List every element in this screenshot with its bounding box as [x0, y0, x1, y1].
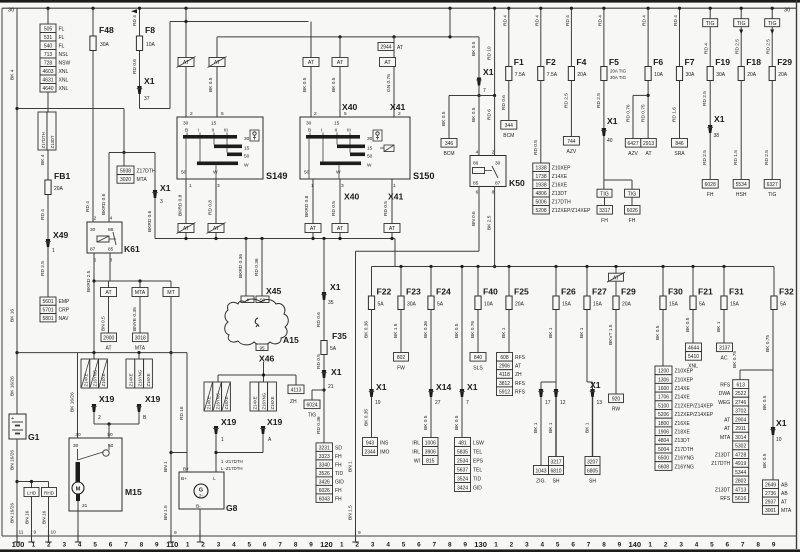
svg-text:F31: F31	[729, 287, 744, 297]
svg-text:BK 0.5: BK 0.5	[423, 415, 429, 430]
svg-text:BKVT 1.5: BKVT 1.5	[608, 324, 614, 345]
svg-text:F30: F30	[668, 287, 683, 297]
svg-text:X19: X19	[267, 417, 283, 427]
svg-text:L -Z17DTH: L -Z17DTH	[221, 466, 243, 471]
svg-text:Z16XE: Z16XE	[101, 373, 106, 386]
svg-text:RD 6: RD 6	[487, 109, 493, 120]
svg-text:F18: F18	[746, 57, 761, 67]
svg-text:6327: 6327	[767, 182, 778, 188]
svg-text:ZIG.: ZIG.	[536, 479, 546, 485]
svg-text:6026: 6026	[319, 488, 330, 494]
svg-text:3137: 3137	[719, 346, 730, 352]
svg-text:Z14XE: Z14XE	[675, 386, 691, 392]
svg-text:15: 15	[211, 121, 217, 127]
svg-text:AT: AT	[781, 500, 787, 506]
svg-text:20A: 20A	[54, 186, 64, 192]
svg-text:4919: 4919	[735, 461, 746, 467]
svg-text:2944: 2944	[380, 44, 391, 50]
svg-text:Z17DTH: Z17DTH	[711, 461, 730, 467]
svg-text:BK 0.5: BK 0.5	[331, 77, 337, 92]
svg-text:30: 30	[8, 8, 14, 14]
svg-text:38: 38	[714, 133, 720, 139]
svg-text:3001: 3001	[765, 508, 776, 514]
svg-text:X1: X1	[776, 418, 787, 428]
svg-text:4806: 4806	[535, 191, 546, 197]
svg-text:3: 3	[679, 542, 683, 549]
svg-text:RD 4: RD 4	[565, 15, 571, 26]
svg-text:4713: 4713	[735, 487, 746, 493]
svg-text:7.5A: 7.5A	[547, 72, 558, 78]
svg-text:4728: 4728	[735, 452, 746, 458]
svg-text:MTA: MTA	[720, 435, 731, 441]
svg-text:BK 1: BK 1	[548, 422, 554, 433]
svg-text:1043: 1043	[535, 468, 546, 474]
svg-text:20A TIG: 20A TIG	[610, 69, 627, 74]
svg-text:4: 4	[386, 542, 390, 549]
svg-text:TIG: TIG	[706, 21, 715, 27]
svg-text:RD 4: RD 4	[132, 15, 138, 26]
svg-text:30: 30	[183, 121, 189, 127]
svg-text:RD 2.5: RD 2.5	[764, 150, 770, 165]
svg-text:3: 3	[160, 199, 163, 205]
svg-text:3217: 3217	[550, 459, 561, 465]
svg-text:30A TIG: 30A TIG	[610, 75, 627, 80]
svg-text:4804: 4804	[658, 438, 669, 444]
svg-text:540: 540	[44, 43, 53, 49]
svg-text:30A: 30A	[686, 72, 696, 78]
svg-text:4644: 4644	[688, 346, 699, 352]
svg-text:BK 16: BK 16	[10, 309, 16, 322]
svg-text:Z12XEP/Z14XEP: Z12XEP/Z14XEP	[675, 403, 714, 409]
svg-text:F6: F6	[653, 57, 663, 67]
svg-text:5616: 5616	[735, 496, 746, 502]
svg-text:G8: G8	[226, 503, 238, 513]
svg-text:X1: X1	[144, 76, 155, 86]
svg-text:12: 12	[560, 400, 566, 406]
svg-text:RD 0.6: RD 0.6	[316, 312, 322, 327]
svg-text:RD 0.8: RD 0.8	[208, 200, 214, 215]
svg-text:RFS: RFS	[720, 496, 731, 502]
svg-text:Z14XE: Z14XE	[675, 395, 691, 401]
svg-text:EPS: EPS	[473, 458, 484, 464]
svg-text:10A: 10A	[654, 72, 664, 78]
svg-text:BK 0.35: BK 0.35	[364, 409, 370, 426]
svg-text:2: 2	[98, 415, 101, 421]
svg-text:F4: F4	[576, 57, 586, 67]
svg-text:Z14XE: Z14XE	[207, 396, 212, 409]
svg-text:FL: FL	[59, 35, 65, 41]
svg-text:X1: X1	[330, 282, 341, 292]
svg-text:BK 4: BK 4	[40, 154, 46, 165]
svg-text:RD 2.5: RD 2.5	[702, 91, 708, 106]
svg-text:RD 0.6: RD 0.6	[501, 95, 507, 110]
svg-text:4113: 4113	[291, 388, 302, 394]
svg-text:L: L	[213, 476, 216, 482]
svg-text:X1: X1	[607, 116, 618, 126]
svg-text:2522: 2522	[735, 391, 746, 397]
svg-text:F7: F7	[685, 57, 695, 67]
svg-text:846: 846	[675, 141, 684, 147]
svg-text:30: 30	[90, 227, 96, 233]
svg-text:50: 50	[181, 170, 187, 176]
svg-text:140: 140	[628, 540, 641, 549]
svg-text:13: 13	[597, 400, 603, 406]
svg-text:5206: 5206	[658, 412, 669, 418]
svg-text:AT: AT	[724, 417, 730, 423]
svg-text:1006: 1006	[425, 440, 436, 446]
svg-text:20A: 20A	[577, 72, 587, 78]
svg-text:5701: 5701	[42, 308, 53, 314]
svg-text:50: 50	[304, 170, 310, 176]
svg-text:7: 7	[278, 542, 282, 549]
svg-text:AT: AT	[105, 290, 112, 296]
svg-text:F2: F2	[546, 57, 556, 67]
svg-text:SD: SD	[335, 445, 342, 451]
svg-text:5302: 5302	[735, 444, 746, 450]
svg-text:7: 7	[466, 400, 469, 406]
svg-text:4: 4	[476, 150, 479, 156]
svg-text:30: 30	[73, 443, 79, 449]
svg-text:BN 1: BN 1	[163, 461, 169, 472]
svg-text:RFS: RFS	[515, 355, 526, 361]
svg-text:15A: 15A	[593, 302, 603, 308]
svg-text:6024: 6024	[306, 403, 317, 409]
svg-text:RHD: RHD	[44, 490, 55, 495]
svg-text:20A: 20A	[778, 72, 788, 78]
svg-text:F23: F23	[406, 287, 421, 297]
svg-text:W: W	[213, 170, 218, 176]
svg-text:MTA: MTA	[135, 290, 146, 296]
svg-text:4631: 4631	[42, 77, 53, 83]
svg-text:MT: MT	[167, 290, 175, 296]
svg-text:AT: AT	[105, 346, 111, 352]
svg-text:2937: 2937	[765, 500, 776, 506]
svg-text:RW: RW	[612, 407, 621, 413]
svg-text:AT: AT	[389, 226, 396, 232]
svg-text:AB: AB	[781, 491, 788, 497]
svg-text:3812: 3812	[499, 381, 510, 387]
svg-text:5912: 5912	[499, 389, 510, 395]
svg-text:9: 9	[309, 542, 313, 549]
svg-text:3906: 3906	[425, 449, 436, 455]
svg-text:5601: 5601	[42, 299, 53, 305]
svg-text:MTA: MTA	[781, 508, 792, 514]
svg-text:X40: X40	[344, 192, 360, 202]
svg-text:2: 2	[510, 542, 514, 549]
svg-text:IRL: IRL	[412, 449, 420, 455]
svg-text:RD 2.5: RD 2.5	[596, 93, 602, 108]
svg-text:BN 16: BN 16	[25, 510, 31, 524]
svg-text:BK 1.5: BK 1.5	[393, 323, 399, 338]
svg-text:15A: 15A	[669, 302, 679, 308]
svg-text:RD 0.5: RD 0.5	[383, 201, 389, 216]
svg-text:30: 30	[306, 121, 312, 127]
svg-text:4118: 4118	[499, 372, 510, 378]
svg-text:2: 2	[190, 111, 193, 117]
svg-text:FH: FH	[601, 218, 608, 224]
svg-text:BK 0.5: BK 0.5	[208, 77, 214, 92]
svg-text:4: 4	[110, 216, 113, 222]
svg-text:2904: 2904	[735, 417, 746, 423]
svg-text:BKRD 0.8: BKRD 0.8	[178, 194, 184, 216]
svg-text:SH: SH	[589, 479, 596, 485]
svg-text:Z16YNG: Z16YNG	[675, 456, 695, 462]
svg-text:M: M	[76, 487, 81, 493]
svg-text:130: 130	[474, 540, 487, 549]
svg-text:ZH: ZH	[290, 399, 297, 405]
svg-text:Z13DT: Z13DT	[675, 438, 690, 444]
svg-text:6: 6	[417, 542, 421, 549]
svg-text:3: 3	[525, 542, 529, 549]
svg-text:744: 744	[567, 139, 576, 145]
svg-text:XNL: XNL	[59, 69, 69, 75]
svg-text:2649: 2649	[765, 482, 776, 488]
svg-text:BK 0.5: BK 0.5	[762, 395, 768, 410]
svg-text:6028: 6028	[705, 182, 716, 188]
svg-text:37: 37	[144, 96, 150, 102]
svg-text:BK 1: BK 1	[585, 422, 591, 433]
svg-text:1: 1	[189, 183, 192, 189]
svg-text:X14: X14	[436, 382, 452, 392]
svg-text:AZV: AZV	[567, 149, 577, 155]
svg-text:BN 0.5: BN 0.5	[101, 316, 107, 331]
svg-text:5100: 5100	[658, 403, 669, 409]
svg-text:F22: F22	[377, 287, 392, 297]
svg-text:FL: FL	[59, 26, 65, 32]
svg-text:FH: FH	[335, 462, 342, 468]
svg-text:TIG: TIG	[768, 192, 776, 198]
svg-text:NSL: NSL	[59, 52, 69, 58]
svg-text:BCM: BCM	[443, 151, 454, 157]
svg-text:RD 10: RD 10	[487, 46, 493, 60]
svg-text:RD 4: RD 4	[597, 15, 603, 26]
svg-text:7: 7	[483, 88, 486, 94]
svg-text:NSW: NSW	[59, 60, 71, 66]
svg-text:3317: 3317	[599, 208, 610, 214]
svg-text:1338: 1338	[535, 165, 546, 171]
svg-text:FH: FH	[629, 218, 636, 224]
svg-text:BK 1: BK 1	[533, 422, 539, 433]
svg-text:RD 2.5: RD 2.5	[766, 39, 772, 54]
svg-text:AT: AT	[337, 226, 344, 232]
svg-text:Z16XE: Z16XE	[675, 421, 691, 427]
svg-text:F27: F27	[592, 287, 607, 297]
svg-text:3: 3	[217, 542, 221, 549]
svg-text:5006: 5006	[535, 199, 546, 205]
svg-text:5344: 5344	[735, 470, 746, 476]
svg-text:I: I	[321, 128, 322, 133]
svg-text:TIG: TIG	[600, 191, 609, 197]
svg-text:Z16YNG: Z16YNG	[261, 392, 266, 409]
svg-text:IRL: IRL	[412, 440, 420, 446]
svg-text:Z14XE: Z14XE	[129, 373, 134, 386]
svg-text:20A: 20A	[515, 302, 525, 308]
svg-text:2344: 2344	[364, 449, 375, 455]
svg-text:6: 6	[263, 542, 267, 549]
svg-text:X40: X40	[342, 102, 358, 112]
svg-text:MTA: MTA	[135, 346, 146, 352]
svg-text:BK 0.5: BK 0.5	[302, 77, 308, 92]
svg-text:9: 9	[358, 530, 361, 536]
svg-text:3524: 3524	[457, 476, 468, 482]
svg-text:RD 4: RD 4	[40, 209, 46, 220]
svg-text:2913: 2913	[643, 141, 654, 147]
svg-text:RD 0.75: RD 0.75	[641, 104, 647, 122]
svg-text:6: 6	[726, 542, 730, 549]
svg-text:AT: AT	[724, 426, 730, 432]
svg-text:20A: 20A	[622, 302, 632, 308]
svg-text:X49: X49	[53, 230, 69, 240]
svg-text:EMP: EMP	[59, 299, 71, 305]
svg-text:BK 1: BK 1	[716, 321, 722, 332]
svg-text:+: +	[11, 416, 14, 422]
svg-text:1906: 1906	[658, 430, 669, 436]
svg-text:531: 531	[44, 35, 53, 41]
svg-text:BK 0.5: BK 0.5	[471, 41, 477, 56]
svg-text:5: 5	[221, 111, 224, 117]
svg-text:2746: 2746	[735, 400, 746, 406]
svg-text:30: 30	[367, 136, 373, 142]
svg-text:GN 0.76: GN 0.76	[386, 74, 392, 92]
svg-text:943: 943	[366, 440, 375, 446]
svg-text:BK 16/26: BK 16/26	[10, 376, 16, 396]
svg-text:Z14XE: Z14XE	[84, 373, 89, 386]
svg-text:RD 1.6: RD 1.6	[672, 107, 678, 122]
svg-text:10A: 10A	[146, 42, 156, 48]
svg-text:27: 27	[435, 400, 441, 406]
svg-text:RD 2.5: RD 2.5	[40, 261, 46, 276]
svg-text:F19: F19	[715, 57, 730, 67]
svg-text:X1: X1	[331, 367, 342, 377]
svg-text:RD 0.36: RD 0.36	[316, 416, 322, 434]
svg-text:346: 346	[445, 141, 454, 147]
svg-text:5534: 5534	[736, 182, 747, 188]
svg-text:RD 0.5: RD 0.5	[331, 201, 337, 216]
svg-text:6500: 6500	[658, 456, 669, 462]
svg-text:30A: 30A	[100, 42, 110, 48]
svg-text:30: 30	[244, 136, 250, 142]
svg-text:6: 6	[476, 190, 479, 196]
svg-text:X1: X1	[467, 382, 478, 392]
svg-text:BK 0.75: BK 0.75	[732, 351, 738, 368]
svg-text:3: 3	[63, 542, 67, 549]
svg-text:AC: AC	[721, 356, 728, 362]
svg-text:3231: 3231	[319, 445, 330, 451]
svg-text:WEG: WEG	[718, 400, 730, 406]
svg-text:5: 5	[556, 542, 560, 549]
svg-text:BN 16/26: BN 16/26	[10, 450, 16, 470]
svg-text:BK 0.75: BK 0.75	[765, 335, 771, 352]
svg-text:3: 3	[217, 183, 220, 189]
svg-text:F8: F8	[145, 25, 155, 35]
svg-text:BK 1: BK 1	[579, 327, 585, 338]
svg-text:B+: B+	[181, 476, 187, 482]
svg-text:50: 50	[367, 154, 373, 160]
svg-text:9: 9	[772, 542, 776, 549]
svg-text:SLS: SLS	[473, 366, 483, 372]
svg-text:1706: 1706	[658, 395, 669, 401]
svg-text:FH: FH	[335, 454, 342, 460]
svg-text:19: 19	[375, 400, 381, 406]
svg-text:BN 16: BN 16	[42, 510, 48, 524]
svg-text:2: 2	[314, 111, 317, 117]
svg-text:2534: 2534	[457, 458, 468, 464]
svg-text:30: 30	[75, 432, 81, 438]
svg-text:728: 728	[44, 60, 53, 66]
svg-text:5A: 5A	[378, 302, 385, 308]
svg-text:BK 0.5: BK 0.5	[762, 453, 768, 468]
svg-text:10: 10	[776, 437, 782, 443]
svg-text:8: 8	[756, 542, 760, 549]
svg-text:BN 1: BN 1	[348, 461, 354, 472]
svg-text:1: 1	[340, 542, 344, 549]
svg-text:2802: 2802	[735, 479, 746, 485]
svg-text:344: 344	[505, 123, 514, 129]
svg-text:4: 4	[232, 542, 236, 549]
svg-text:WI: WI	[414, 458, 420, 464]
svg-text:RD 1.5: RD 1.5	[733, 150, 739, 165]
svg-text:RD 2.5: RD 2.5	[735, 39, 741, 54]
svg-text:F26: F26	[561, 287, 576, 297]
svg-text:31: 31	[82, 503, 88, 509]
svg-text:5801: 5801	[42, 316, 53, 322]
svg-text:100: 100	[12, 540, 25, 549]
svg-text:50: 50	[244, 154, 250, 160]
svg-text:Z16XE: Z16XE	[552, 182, 568, 188]
svg-text:5938: 5938	[120, 169, 131, 175]
svg-text:BK 0.76: BK 0.76	[470, 321, 476, 338]
svg-text:AT: AT	[308, 60, 315, 66]
svg-text:2900: 2900	[103, 336, 114, 342]
svg-text:BK 1: BK 1	[501, 327, 507, 338]
svg-text:FH: FH	[335, 488, 342, 494]
svg-text:3340: 3340	[319, 462, 330, 468]
svg-text:Z16XE: Z16XE	[224, 396, 229, 409]
svg-text:FB1: FB1	[54, 171, 70, 181]
svg-text:6: 6	[571, 542, 575, 549]
svg-text:3426: 3426	[319, 479, 330, 485]
svg-text:2: 2	[664, 542, 668, 549]
svg-text:8: 8	[294, 542, 298, 549]
svg-text:1938: 1938	[535, 182, 546, 188]
svg-text:15: 15	[367, 146, 373, 152]
svg-text:3: 3	[371, 542, 375, 549]
svg-text:AT: AT	[397, 45, 403, 51]
svg-text:AZV: AZV	[628, 151, 638, 157]
svg-text:X41: X41	[388, 192, 404, 202]
svg-text:MTA: MTA	[137, 177, 148, 183]
svg-text:K61: K61	[124, 244, 140, 254]
svg-text:1: 1	[393, 183, 396, 189]
svg-text:Z17DTH: Z17DTH	[41, 132, 46, 148]
svg-text:Z12XEP/Z14XEP: Z12XEP/Z14XEP	[552, 208, 591, 214]
svg-text:9: 9	[463, 542, 467, 549]
svg-text:RD 16: RD 16	[179, 406, 185, 420]
svg-text:Z13DT: Z13DT	[715, 487, 730, 493]
svg-text:3526: 3526	[319, 471, 330, 477]
svg-text:X19: X19	[99, 394, 115, 404]
svg-text:RFS: RFS	[720, 382, 731, 388]
svg-text:85: 85	[473, 181, 479, 187]
svg-text:8: 8	[140, 542, 144, 549]
svg-text:5: 5	[248, 542, 252, 549]
svg-text:15A: 15A	[730, 302, 740, 308]
svg-text:15: 15	[334, 121, 340, 127]
svg-text:Z16YNG: Z16YNG	[137, 369, 142, 386]
svg-text:3207: 3207	[587, 459, 598, 465]
svg-text:2: 2	[398, 111, 401, 117]
svg-text:TIG: TIG	[308, 413, 316, 419]
